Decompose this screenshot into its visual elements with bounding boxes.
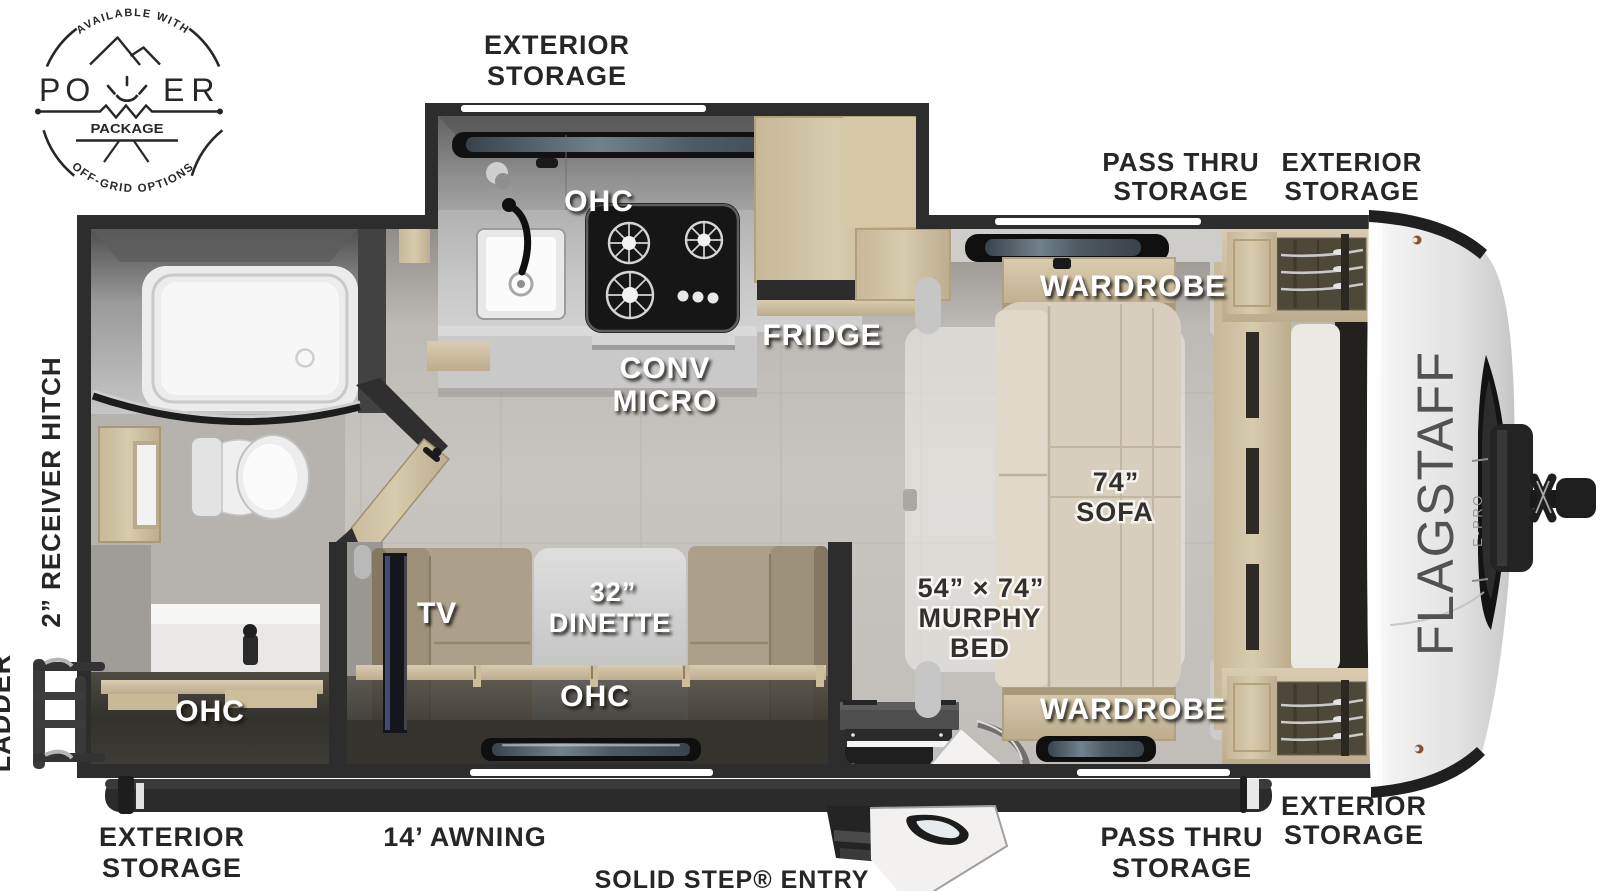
svg-text:32”: 32”	[590, 577, 637, 607]
svg-text:LADDER: LADDER	[0, 654, 16, 773]
svg-text:2” RECEIVER HITCH: 2” RECEIVER HITCH	[36, 356, 66, 627]
svg-text:EXTERIOR: EXTERIOR	[1281, 791, 1427, 821]
svg-text:MURPHY: MURPHY	[918, 603, 1041, 633]
svg-text:WARDROBE: WARDROBE	[1040, 693, 1226, 726]
svg-text:SOLID STEP® ENTRY: SOLID STEP® ENTRY	[595, 866, 870, 891]
svg-text:STORAGE: STORAGE	[102, 853, 242, 883]
svg-text:PACKAGE: PACKAGE	[91, 122, 164, 136]
svg-text:PASS THRU: PASS THRU	[1100, 822, 1263, 852]
svg-text:STORAGE: STORAGE	[1284, 176, 1419, 206]
svg-text:OHC: OHC	[564, 185, 634, 218]
svg-text:FRIDGE: FRIDGE	[762, 319, 881, 352]
svg-text:WARDROBE: WARDROBE	[1040, 270, 1226, 303]
svg-text:CONV: CONV	[620, 352, 711, 385]
svg-text:STORAGE: STORAGE	[1112, 853, 1252, 883]
svg-text:74”: 74”	[1093, 467, 1140, 497]
svg-text:EXTERIOR: EXTERIOR	[1282, 147, 1423, 177]
svg-text:STORAGE: STORAGE	[487, 61, 627, 91]
svg-text:TV: TV	[417, 597, 457, 630]
svg-text:E-PRO: E-PRO	[1470, 493, 1485, 547]
svg-text:STORAGE: STORAGE	[1113, 176, 1248, 206]
svg-text:SOFA: SOFA	[1076, 497, 1154, 527]
svg-text:PO: PO	[39, 72, 95, 108]
svg-text:14’ AWNING: 14’ AWNING	[383, 822, 547, 852]
svg-text:EXTERIOR: EXTERIOR	[99, 822, 245, 852]
svg-text:DINETTE: DINETTE	[549, 608, 672, 638]
svg-text:54” × 74”: 54” × 74”	[918, 573, 1045, 603]
svg-text:STORAGE: STORAGE	[1284, 820, 1424, 850]
svg-text:FLAGSTAFF: FLAGSTAFF	[1407, 350, 1464, 656]
svg-text:BED: BED	[950, 633, 1010, 663]
svg-text:MICRO: MICRO	[613, 385, 718, 418]
svg-text:ER: ER	[163, 72, 221, 108]
svg-text:OHC: OHC	[175, 695, 245, 728]
svg-text:EXTERIOR: EXTERIOR	[484, 30, 630, 60]
svg-text:PASS THRU: PASS THRU	[1102, 147, 1259, 177]
svg-text:OHC: OHC	[560, 680, 630, 713]
